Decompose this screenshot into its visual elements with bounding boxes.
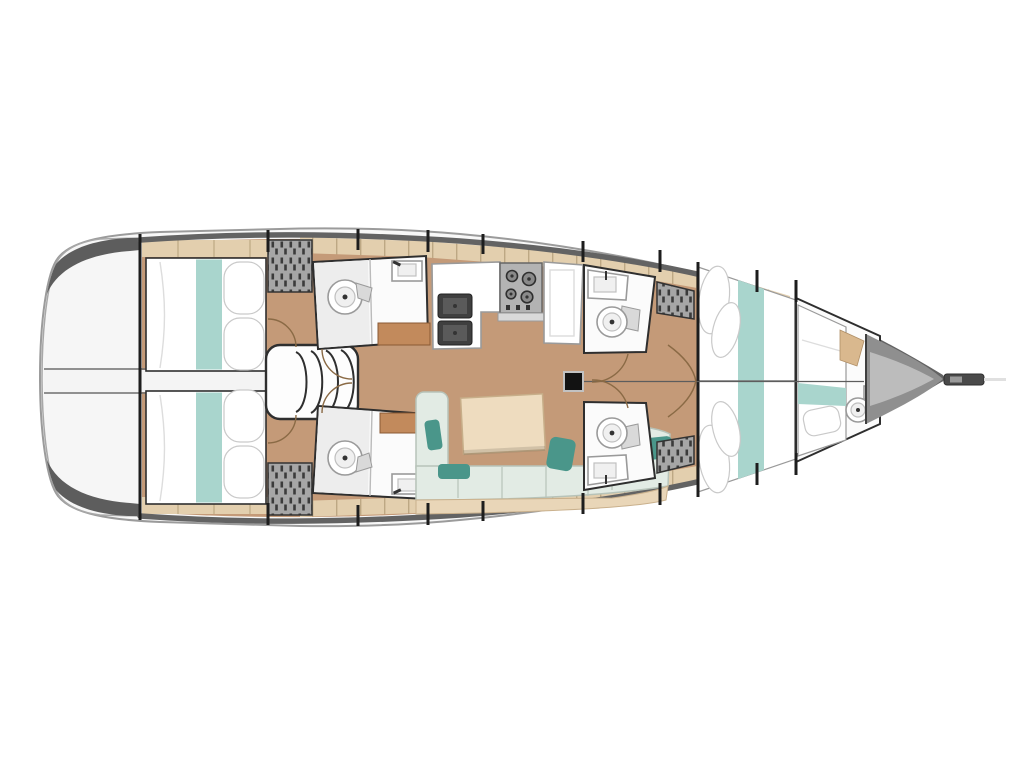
mid-head-top [584,265,655,353]
slatted-locker-icon [268,240,312,292]
wood-locker-bottom [380,413,420,433]
pillow [224,318,264,370]
mast-foot-icon [564,372,583,391]
pillow [224,446,264,498]
mid-head-bottom [584,402,655,490]
bed-runner [738,280,764,479]
wood-locker-top [378,323,430,345]
washbasin-icon [588,270,628,300]
aft-shelf-top [142,240,268,257]
stern-walkway [44,369,268,393]
anchor-locker [866,334,943,424]
throw-pillow [545,436,576,472]
yacht-floorplan-drawing [0,0,1024,768]
pillow [224,262,264,314]
aft-cabin-bottom [146,390,266,504]
walkway-floor [44,370,268,392]
pillow [224,390,264,442]
slatted-locker-icon [268,463,312,515]
washbasin-icon [392,260,422,281]
yacht-floorplan-canvas [0,0,1024,768]
bed-runner [196,260,222,370]
bed-runner [196,393,222,503]
bowsprit-icon [944,374,1006,385]
aft-cabin-top [146,258,266,371]
throw-pillow [438,464,470,479]
stove-icon [498,263,544,321]
washbasin-icon [588,455,628,485]
forward-cabin [694,262,796,497]
salon-table-icon [461,394,546,455]
